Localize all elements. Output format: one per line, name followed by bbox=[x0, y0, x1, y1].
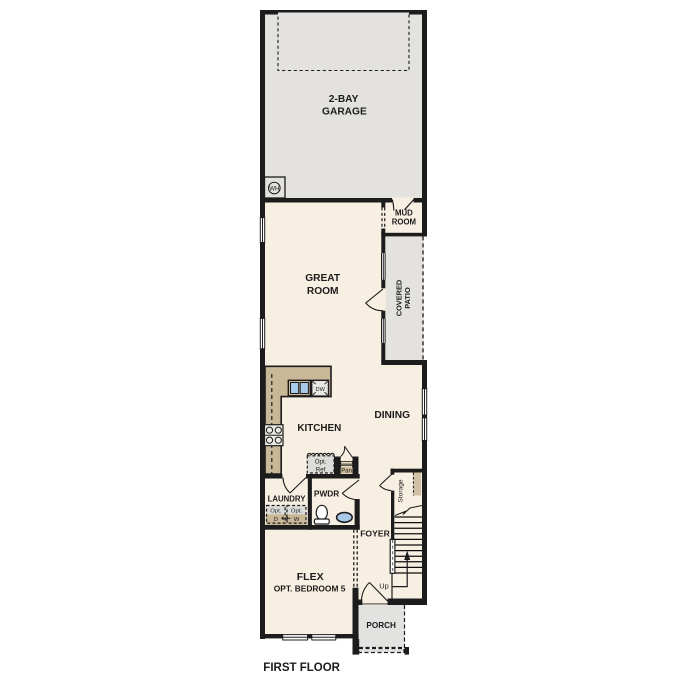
svg-text:OPT. BEDROOM 5: OPT. BEDROOM 5 bbox=[274, 584, 346, 594]
svg-text:Ref: Ref bbox=[316, 466, 326, 473]
svg-text:KITCHEN: KITCHEN bbox=[297, 423, 341, 434]
svg-text:Up: Up bbox=[379, 582, 388, 591]
svg-text:DINING: DINING bbox=[374, 410, 410, 421]
svg-text:D: D bbox=[274, 517, 278, 523]
svg-text:DW: DW bbox=[316, 387, 326, 393]
svg-text:WH: WH bbox=[269, 185, 279, 192]
svg-text:FIRST FLOOR: FIRST FLOOR bbox=[263, 662, 340, 674]
svg-text:ROOM: ROOM bbox=[392, 218, 416, 227]
svg-text:PORCH: PORCH bbox=[366, 621, 396, 630]
svg-text:PATIO: PATIO bbox=[403, 287, 412, 309]
svg-text:Opt.: Opt. bbox=[315, 458, 327, 465]
svg-text:Opt.: Opt. bbox=[270, 508, 281, 514]
svg-text:ROOM: ROOM bbox=[307, 286, 339, 297]
svg-text:FLEX: FLEX bbox=[297, 571, 324, 583]
svg-text:W: W bbox=[294, 517, 300, 523]
svg-text:GARAGE: GARAGE bbox=[322, 106, 367, 117]
svg-text:MUD: MUD bbox=[395, 208, 413, 217]
svg-text:Opt.: Opt. bbox=[291, 508, 302, 514]
svg-text:Pan: Pan bbox=[341, 469, 352, 475]
svg-text:GREAT: GREAT bbox=[305, 273, 341, 284]
svg-text:LAUNDRY: LAUNDRY bbox=[268, 494, 307, 503]
svg-text:PWDR: PWDR bbox=[314, 488, 339, 498]
svg-text:2-BAY: 2-BAY bbox=[329, 94, 359, 105]
svg-text:Storage: Storage bbox=[398, 479, 405, 502]
svg-text:FOYER: FOYER bbox=[360, 528, 390, 538]
